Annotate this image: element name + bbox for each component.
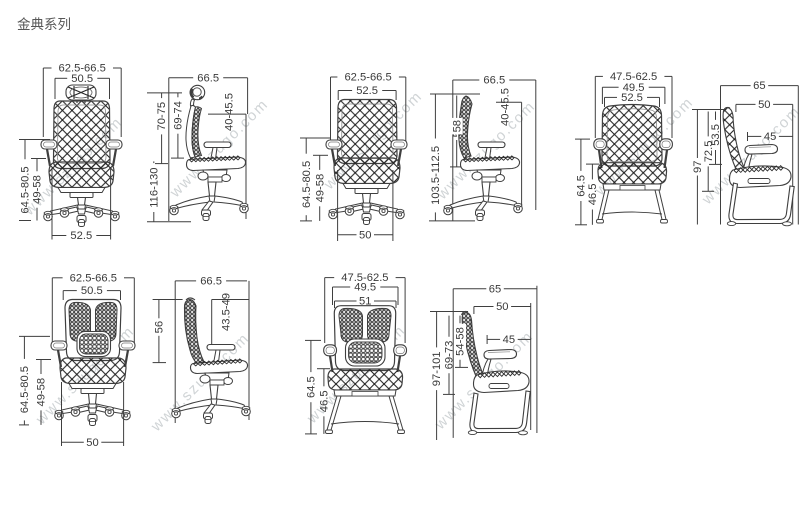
svg-text:116-130: 116-130 [148, 167, 160, 207]
svg-text:50.5: 50.5 [81, 285, 103, 297]
svg-text:52.5: 52.5 [621, 92, 643, 104]
svg-text:64.5: 64.5 [306, 376, 318, 398]
svg-text:97-101: 97-101 [431, 351, 443, 386]
svg-text:64.5: 64.5 [576, 175, 588, 197]
svg-text:49-58: 49-58 [36, 378, 48, 407]
svg-text:50: 50 [496, 301, 508, 313]
svg-text:64.5-80.5: 64.5-80.5 [301, 161, 313, 208]
svg-text:70-75: 70-75 [156, 102, 168, 131]
svg-text:66.5: 66.5 [483, 75, 505, 87]
svg-text:64.5-80.5: 64.5-80.5 [20, 166, 32, 213]
svg-text:69-74: 69-74 [173, 101, 185, 130]
svg-text:50: 50 [758, 99, 770, 111]
svg-text:49.5: 49.5 [354, 282, 376, 294]
svg-text:103.5-112.5: 103.5-112.5 [430, 146, 442, 205]
svg-text:66.5: 66.5 [200, 276, 222, 288]
svg-text:50: 50 [86, 437, 98, 449]
svg-text:金典系列: 金典系列 [17, 17, 71, 32]
svg-text:45: 45 [503, 334, 515, 346]
svg-text:40-45.5: 40-45.5 [500, 88, 512, 126]
svg-text:49-58: 49-58 [32, 175, 44, 204]
svg-text:62.5-66.5: 62.5-66.5 [70, 272, 117, 284]
svg-text:58: 58 [451, 120, 463, 132]
svg-text:65: 65 [753, 80, 765, 92]
svg-text:52.5: 52.5 [70, 230, 92, 242]
svg-text:52.5: 52.5 [356, 85, 378, 97]
svg-text:54-58: 54-58 [455, 327, 467, 356]
svg-text:46.5: 46.5 [587, 184, 599, 206]
svg-text:43.5-49: 43.5-49 [221, 293, 233, 331]
svg-text:45: 45 [764, 131, 776, 143]
svg-text:56: 56 [154, 321, 166, 333]
svg-text:50.5: 50.5 [71, 73, 93, 85]
svg-text:53.5: 53.5 [710, 124, 722, 146]
svg-text:64.5-80.5: 64.5-80.5 [19, 366, 31, 413]
svg-text:66.5: 66.5 [197, 72, 219, 84]
svg-text:49-58: 49-58 [314, 174, 326, 203]
svg-text:46.5: 46.5 [319, 390, 331, 412]
svg-text:50: 50 [359, 229, 371, 241]
svg-text:40-45.5: 40-45.5 [224, 93, 236, 131]
svg-text:62.5-66.5: 62.5-66.5 [344, 72, 391, 84]
svg-text:65: 65 [489, 283, 501, 295]
